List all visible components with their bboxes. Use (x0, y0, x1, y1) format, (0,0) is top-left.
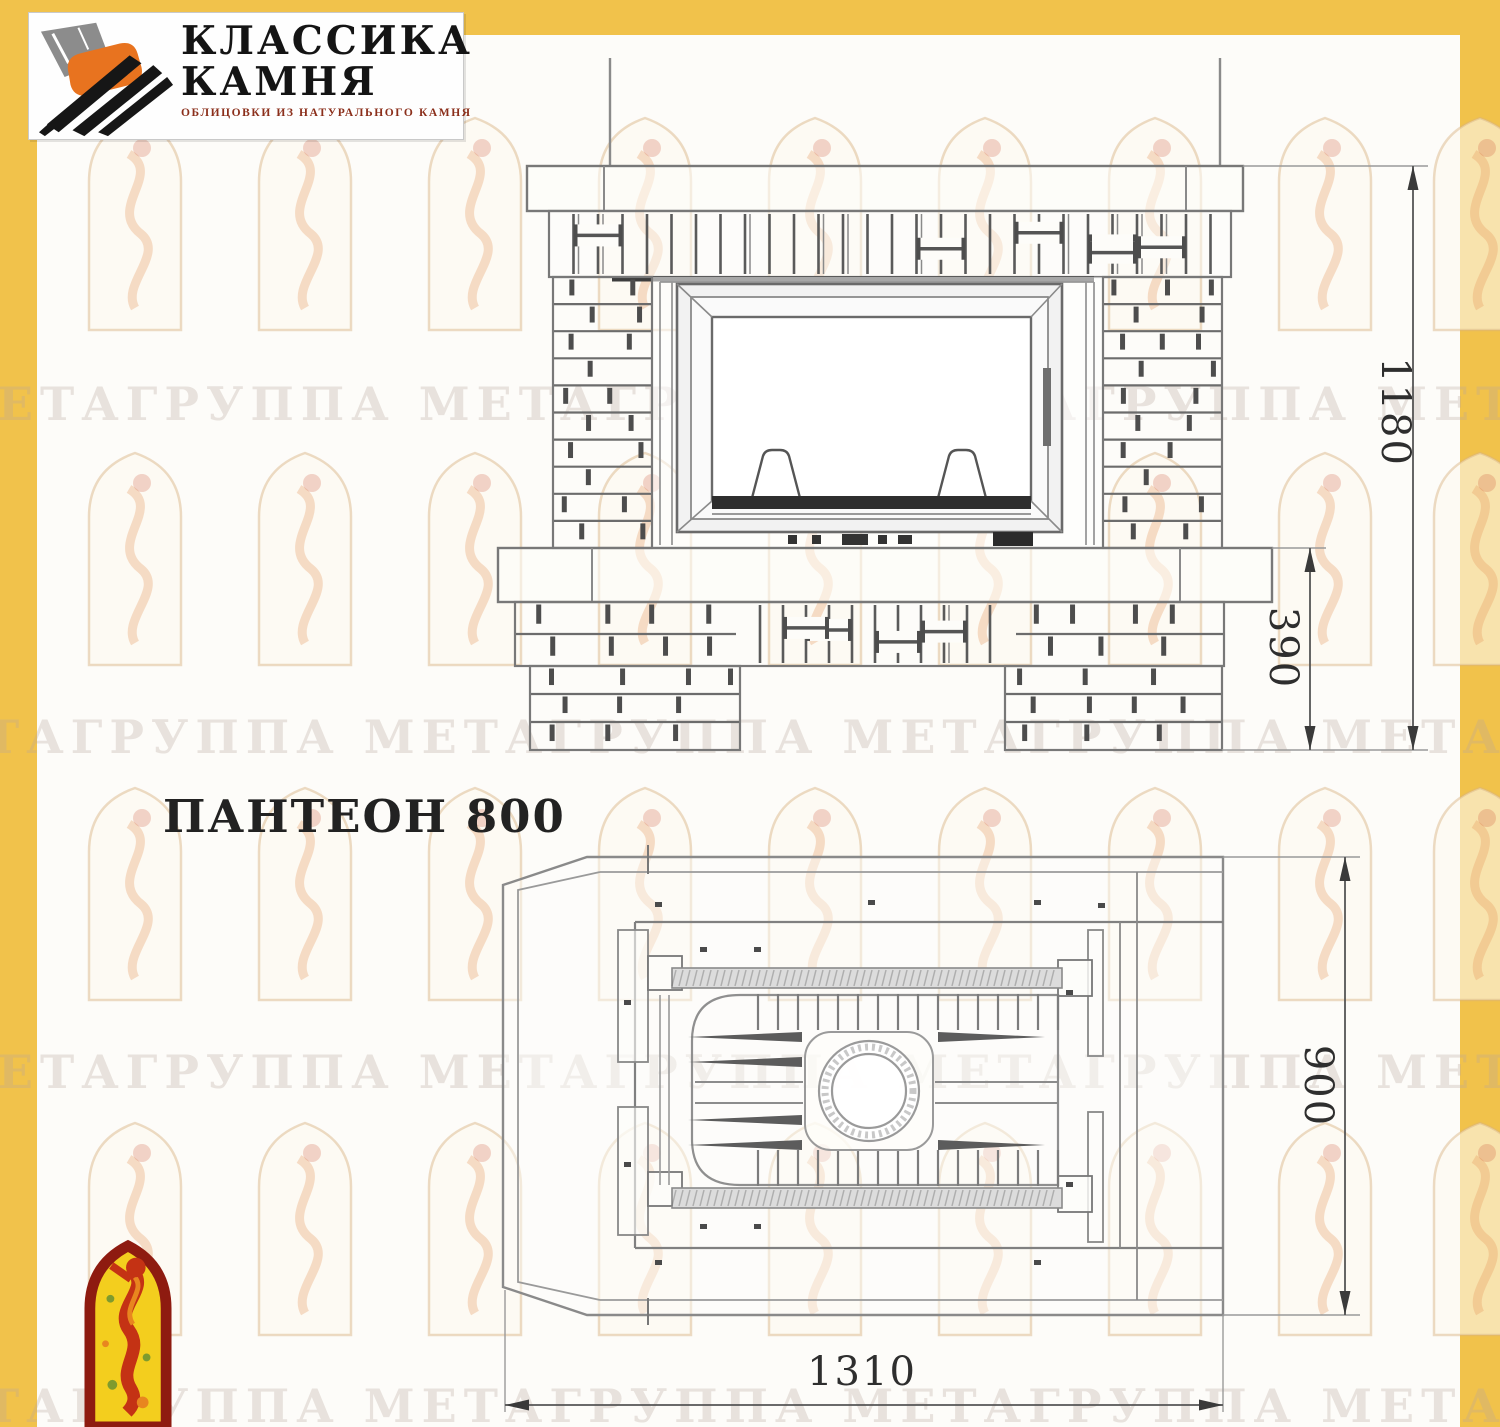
plan-view (503, 845, 1223, 1325)
logo-mark-icon (37, 19, 175, 137)
frieze-soldier-bricks (574, 214, 1211, 274)
firebox-glass (712, 317, 1031, 501)
insert-bracket-bottom-left (648, 1172, 682, 1206)
front-view (498, 58, 1272, 750)
insert-bracket-top-right (1058, 960, 1092, 996)
plinth-right (1005, 666, 1222, 750)
plan-outer-casing (503, 857, 1223, 1315)
logo-line2: КАМНЯ (181, 62, 459, 103)
detail-marks (624, 900, 1105, 1265)
grate-band (712, 496, 1031, 509)
left-brick-pier (553, 277, 652, 548)
technical-drawing: 1180 390 (0, 0, 1500, 1427)
airflow-arrows (688, 1032, 1045, 1150)
plan-view-dimensions: 900 1310 (505, 857, 1360, 1412)
convector-band-bottom (672, 1188, 1062, 1208)
hearth-shelf (498, 548, 1272, 602)
watermark-text-row: МЕТАГРУППА МЕТАГРУППА МЕТАГРУППА МЕТАГРУ… (0, 377, 1500, 431)
firebox-chamber-plan (692, 995, 1058, 1185)
right-brick-pier (1103, 277, 1222, 548)
andiron-left (752, 450, 800, 498)
watermark-layer: МЕТАГРУППА МЕТАГРУППА МЕТАГРУППА МЕТАГРУ… (0, 0, 1500, 1427)
logo-line1: КЛАССИКА (181, 21, 459, 62)
page-edge-right (1460, 0, 1500, 1427)
page-edge-left (0, 0, 37, 1427)
mascot-stamp-icon (84, 1238, 172, 1427)
flue-opening-inner (832, 1054, 906, 1128)
dimension-label-depth: 900 (1295, 1045, 1341, 1127)
dimension-label-total-height: 1180 (1372, 357, 1418, 467)
company-logo: КЛАССИКА КАМНЯ ОБЛИЦОВКИ ИЗ НАТУРАЛЬНОГО… (28, 12, 464, 140)
watermark-text-row: МЕТАГРУППА МЕТАГРУППА МЕТАГРУППА МЕТАГРУ… (0, 1045, 1500, 1099)
heat-fins-top (758, 994, 1058, 1030)
scanned-drawing-page: { "logo": { "line1": "КЛАССИКА", "line2"… (0, 0, 1500, 1427)
insert-bracket-top-left (648, 956, 682, 990)
frieze-band (549, 211, 1231, 277)
door-handle (1043, 368, 1051, 446)
base-band (515, 602, 1224, 666)
andiron-right (938, 450, 986, 498)
heat-fins-bottom (758, 1150, 1058, 1186)
vent-slots (788, 532, 1033, 546)
dimension-label-width: 1310 (807, 1349, 917, 1395)
firebox-door-frame (677, 284, 1062, 532)
convector-band-top (672, 968, 1062, 988)
logo-tagline: ОБЛИЦОВКИ ИЗ НАТУРАЛЬНОГО КАМНЯ (181, 107, 459, 119)
plinth-left (530, 666, 740, 750)
dimension-label-base-height: 390 (1260, 607, 1306, 689)
watermark-text-row: МЕТАГРУППА МЕТАГРУППА МЕТАГРУППА МЕТАГРУ… (0, 1379, 1500, 1427)
flue-opening-outer (819, 1041, 919, 1141)
front-view-dimensions: 1180 390 (1222, 166, 1428, 750)
watermark-text-row: МЕТАГРУППА МЕТАГРУППА МЕТАГРУППА МЕТАГРУ… (0, 710, 1500, 764)
insert-bracket-bottom-right (1058, 1176, 1092, 1212)
model-title: ПАНТЕОН 800 (163, 790, 566, 843)
mantel-shelf (527, 166, 1243, 211)
